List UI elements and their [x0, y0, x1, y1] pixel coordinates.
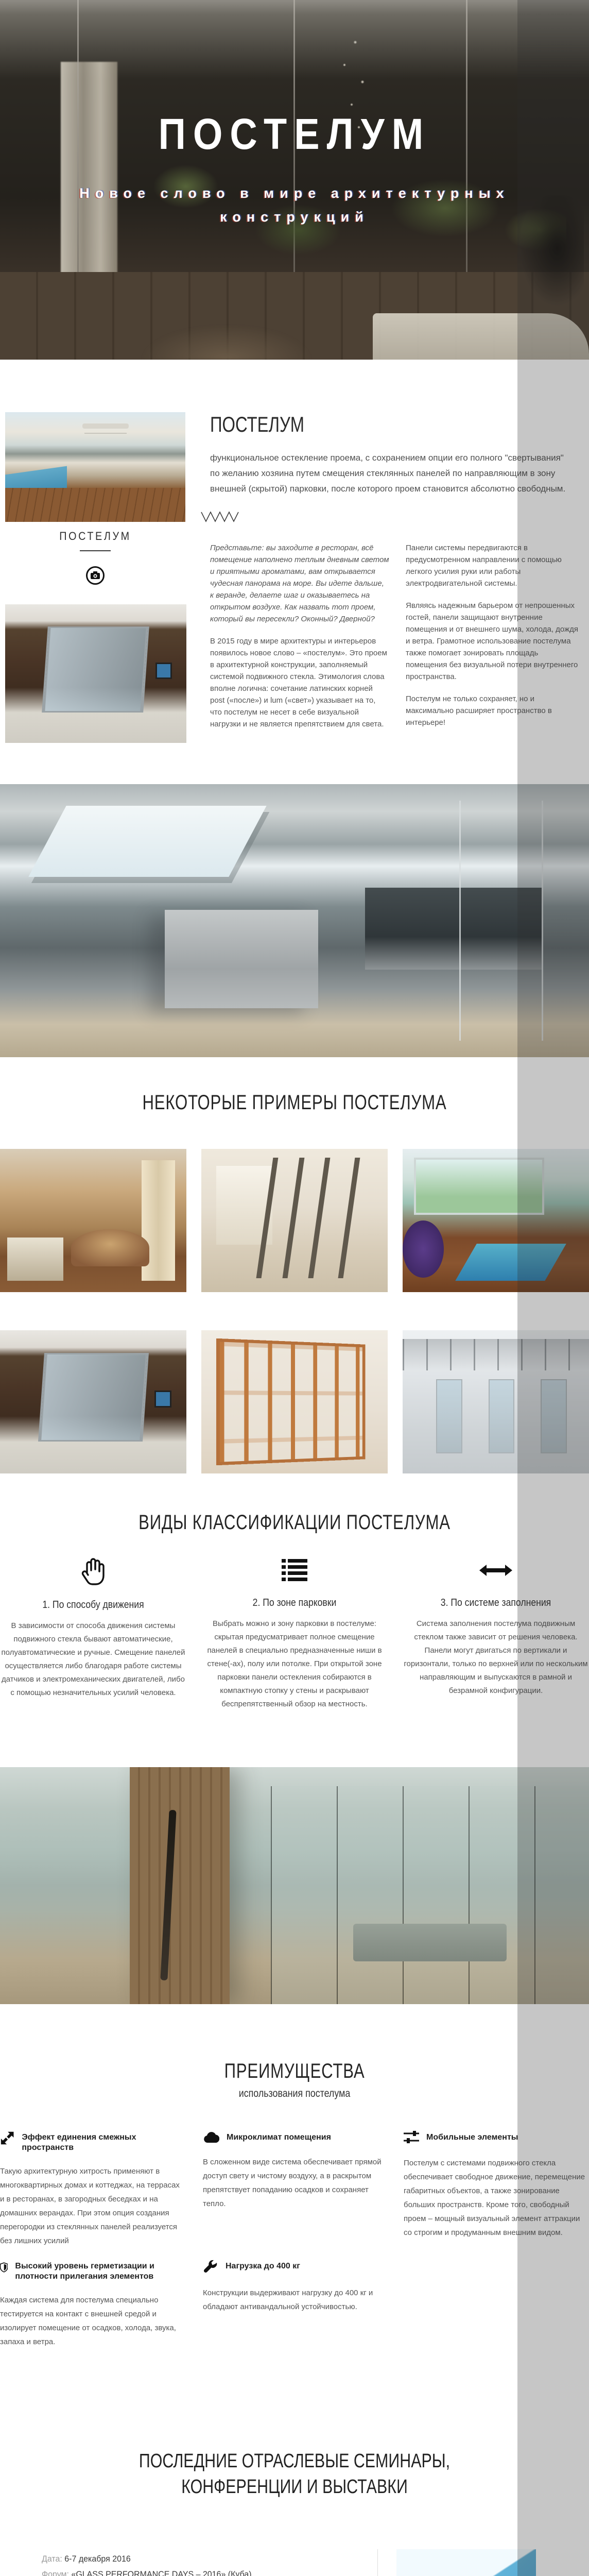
page-title: ПОСТЕЛУМ — [36, 109, 554, 159]
advantage-text: Каждая система для постелума специально … — [0, 2293, 181, 2349]
barrier-paragraph: Являясь надежным барьером от непрошенных… — [406, 600, 579, 683]
pool-decor — [455, 1244, 566, 1281]
classification-text: В зависимости от способа движения систем… — [0, 1619, 186, 1700]
advantage-text: Такую архитектурную хитрость применяют в… — [0, 2164, 181, 2248]
advantage-text: Постелум с системами подвижного стекла о… — [404, 2156, 589, 2240]
event1-meta: Дата: 6-7 декабря 2016 Форум: «GLASS PER… — [42, 2551, 356, 2576]
living-room-photo — [0, 1767, 589, 2004]
seminars-heading-line1: ПОСЛЕДНИЕ ОТРАСЛЕВЫЕ СЕМИНАРЫ, — [59, 2448, 530, 2474]
list-icon — [281, 1557, 308, 1584]
advantage-item-microclimate: Микроклимат помещения В сложенном виде с… — [203, 2130, 391, 2211]
roof-truss-decor — [403, 1339, 589, 1370]
examples-heading: НЕКОТОРЫЕ ПРИМЕРЫ ПОСТЕЛУМА — [65, 1091, 524, 1114]
glass-pane-decor — [489, 1379, 515, 1454]
sliders-icon — [404, 2130, 419, 2145]
intro-column-middle: Представьте: вы заходите в ресторан, всё… — [210, 542, 389, 740]
advantage-title: Высокий уровень герметизации и плотности… — [15, 2259, 181, 2282]
wall-screen-decor — [155, 663, 172, 679]
kitchen-photo — [0, 784, 589, 1057]
page-subtitle: Новое слово в мире архитектурных констру… — [37, 181, 552, 229]
advantage-title: Мобильные элементы — [426, 2130, 518, 2143]
event-type-label: Форум: — [42, 2569, 69, 2576]
glass-frame-line — [77, 0, 79, 319]
door-frame-decor — [308, 1158, 331, 1278]
classification-title: 2. По зоне парковки — [213, 1597, 377, 1609]
imagine-paragraph: Представьте: вы заходите в ресторан, всё… — [210, 542, 389, 625]
classification-text: Система заполнения постелума подвижным с… — [403, 1617, 589, 1698]
camera-icon — [85, 566, 105, 585]
hero-fur-decor — [118, 298, 335, 360]
wrench-icon — [203, 2259, 218, 2275]
advantage-item-spaces: Эффект единения смежных пространств Таку… — [0, 2130, 181, 2248]
advantage-text: В сложенном виде система обеспечивает пр… — [203, 2155, 391, 2211]
showroom-photo — [5, 604, 186, 743]
postelum-landing-page: ПОСТЕЛУМ Новое слово в мире архитектурны… — [0, 0, 589, 2576]
event-date-value: 6-7 декабря 2016 — [64, 2554, 130, 2564]
advantage-item-mobile: Мобильные элементы Постелум с системами … — [404, 2130, 589, 2240]
intro-column-right: Панели системы передвигаются в предусмот… — [406, 542, 579, 739]
door-frame-decor — [282, 1158, 304, 1278]
gallery-photo-showroom — [0, 1330, 186, 1473]
word-origin-paragraph: В 2015 году в мире архитектуры и интерье… — [210, 635, 389, 730]
wall-screen-decor — [154, 1391, 171, 1408]
advantages-heading: ПРЕИМУЩЕСТВА — [65, 2060, 524, 2083]
window-decor — [414, 1158, 544, 1215]
gallery-photo-loft-panels — [403, 1330, 589, 1473]
classification-heading: ВИДЫ КЛАССИФИКАЦИИ ПОСТЕЛУМА — [65, 1511, 524, 1534]
gallery-photo-wooden-partition — [201, 1330, 388, 1473]
veranda-photo — [5, 412, 185, 522]
expand-paragraph: Постелум не только сохраняет, но и макси… — [406, 693, 579, 728]
caption-divider — [80, 550, 111, 551]
ceiling-fan-decor — [82, 423, 129, 429]
photo-caption: ПОСТЕЛУМ — [14, 530, 177, 543]
gallery-photo-bedroom — [0, 1149, 186, 1292]
cloud-icon — [203, 2130, 219, 2144]
advantage-text: Конструкции выдерживают нагрузку до 400 … — [203, 2286, 391, 2314]
merge-arrows-icon — [0, 2130, 14, 2146]
event-column-divider — [377, 2549, 378, 2576]
advantage-item-sealing: Высокий уровень герметизации и плотности… — [0, 2259, 181, 2349]
zigzag-divider-icon — [201, 511, 240, 523]
door-frame-decor — [338, 1158, 360, 1278]
seminars-heading: ПОСЛЕДНИЕ ОТРАСЛЕВЫЕ СЕМИНАРЫ, КОНФЕРЕНЦ… — [59, 2448, 530, 2500]
glass-door-line — [459, 801, 461, 1041]
pouf-decor — [403, 1221, 444, 1278]
shield-icon — [0, 2259, 8, 2276]
gallery-photo-pool-corridor — [403, 1149, 589, 1292]
table-decor — [7, 1238, 63, 1280]
classification-item-filling: 3. По системе заполнения Система заполне… — [403, 1557, 589, 1698]
classification-title: 3. По системе заполнения — [414, 1597, 578, 1609]
glass-pane-decor — [541, 1379, 567, 1454]
accordion-partition-decor — [216, 1338, 365, 1465]
classification-item-movement: 1. По способу движения В зависимости от … — [0, 1557, 186, 1700]
arrows-icon — [479, 1557, 512, 1584]
intro-heading: ПОСТЕЛУМ — [210, 412, 304, 437]
folding-glass-door-decor — [38, 1353, 149, 1442]
classification-title: 1. По способу движения — [11, 1599, 176, 1611]
deck-decor — [5, 488, 185, 522]
sofa-decor — [353, 1924, 506, 1962]
skylight-decor — [28, 806, 266, 877]
intro-lead-paragraph: функциональное остекление проема, с сохр… — [210, 450, 570, 497]
bed-decor — [71, 1229, 149, 1266]
kitchen-island-decor — [165, 910, 318, 1008]
advantage-title: Нагрузка до 400 кг — [226, 2259, 300, 2272]
glass-pane-decor — [436, 1379, 462, 1454]
advantage-title: Микроклимат помещения — [227, 2130, 331, 2143]
hand-icon — [80, 1557, 107, 1586]
advantage-title: Эффект единения смежных пространств — [22, 2130, 181, 2153]
event-date-label: Дата: — [42, 2554, 62, 2564]
sliding-glass-wall-decor — [271, 1786, 589, 2004]
wood-column-decor — [130, 1767, 230, 2004]
gpd-cuba-logo: In conjunction with GPD Cuba — [396, 2549, 536, 2576]
folding-glass-door-decor — [42, 626, 150, 713]
advantages-subheading: использования постелума — [44, 2088, 545, 2100]
classification-text: Выбрать можно и зону парковки в постелум… — [201, 1617, 388, 1711]
classification-item-parking: 2. По зоне парковки Выбрать можно и зону… — [201, 1557, 388, 1711]
panels-paragraph: Панели системы передвигаются в предусмот… — [406, 542, 579, 589]
event-type-value: «GLASS PERFORMANCE DAYS – 2016» (Куба) — [71, 2569, 251, 2576]
hero-curtain-decor — [61, 62, 117, 278]
kitchen-cabinets-decor — [365, 888, 542, 970]
hero-photo — [0, 0, 589, 360]
glass-door-line — [542, 801, 543, 1041]
advantage-item-load: Нагрузка до 400 кг Конструкции выдержива… — [203, 2259, 391, 2314]
seminars-heading-line2: КОНФЕРЕНЦИИ И ВЫСТАВКИ — [59, 2474, 530, 2500]
gallery-photo-folding-doors — [201, 1149, 388, 1292]
